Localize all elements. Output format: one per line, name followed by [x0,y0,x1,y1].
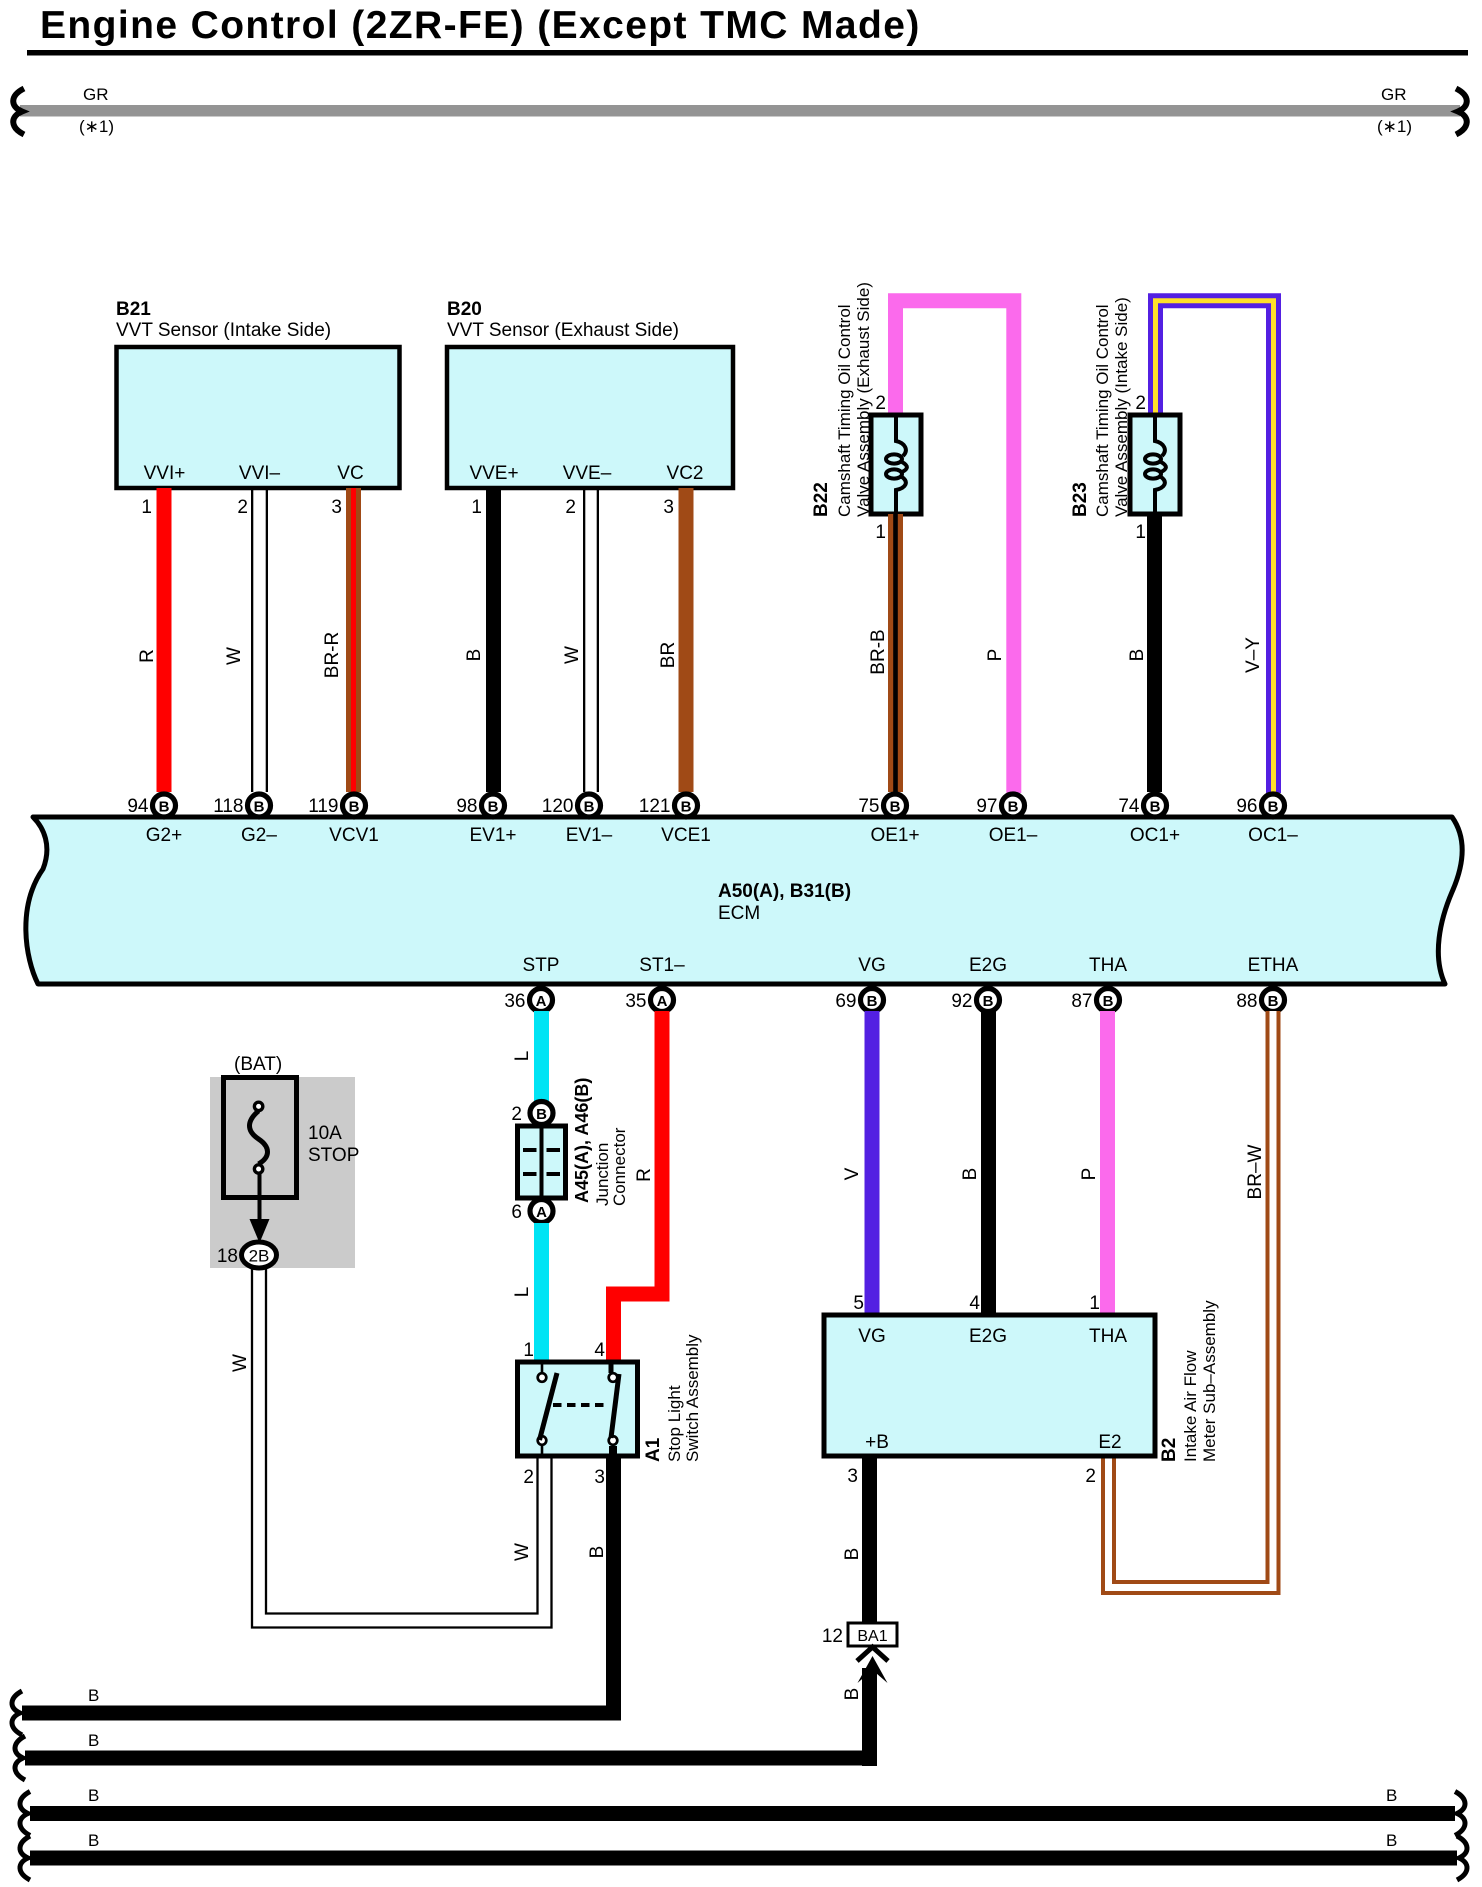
svg-text:75: 75 [858,796,879,817]
svg-text:4: 4 [594,1340,605,1361]
svg-text:VCE1: VCE1 [661,825,711,846]
svg-text:W: W [224,647,245,665]
svg-text:B22: B22 [811,482,832,517]
svg-text:35: 35 [625,991,646,1012]
svg-text:18: 18 [217,1246,238,1267]
svg-text:12: 12 [822,1626,843,1647]
svg-text:B: B [464,649,485,662]
svg-text:B: B [842,1548,863,1561]
svg-text:B: B [1127,649,1148,662]
svg-text:69: 69 [835,991,856,1012]
svg-text:96: 96 [1236,796,1257,817]
svg-text:A45(A), A46(B): A45(A), A46(B) [572,1078,592,1203]
svg-text:2: 2 [1085,1466,1096,1487]
svg-text:B21: B21 [116,299,151,320]
svg-text:B: B [1150,798,1161,815]
svg-text:2B: 2B [249,1247,270,1266]
svg-text:STOP: STOP [308,1145,359,1166]
svg-text:B: B [88,1831,99,1850]
svg-text:Intake Air Flow: Intake Air Flow [1181,1350,1200,1462]
svg-text:BA1: BA1 [857,1628,887,1645]
svg-text:36: 36 [504,991,525,1012]
svg-text:98: 98 [456,796,477,817]
svg-text:B: B [159,798,170,815]
svg-text:L: L [512,1051,533,1062]
svg-text:3: 3 [847,1466,858,1487]
svg-text:(BAT): (BAT) [234,1054,282,1075]
svg-text:B: B [349,798,360,815]
svg-text:OE1+: OE1+ [870,825,919,846]
svg-text:A: A [536,993,547,1010]
svg-text:W: W [230,1354,251,1372]
svg-text:VVE–: VVE– [563,463,612,484]
svg-text:94: 94 [127,796,149,817]
svg-text:B: B [867,993,878,1010]
svg-text:B: B [488,798,499,815]
svg-text:VC: VC [337,463,363,484]
svg-text:2: 2 [875,393,886,414]
svg-text:B: B [960,1168,981,1181]
svg-text:B2: B2 [1159,1438,1180,1462]
svg-text:Camshaft Timing Oil Control: Camshaft Timing Oil Control [835,304,854,517]
svg-text:VVT Sensor (Intake Side): VVT Sensor (Intake Side) [116,320,331,341]
svg-text:B: B [88,1686,99,1705]
svg-text:OC1+: OC1+ [1130,825,1180,846]
svg-text:E2G: E2G [969,1326,1007,1347]
svg-text:B: B [1386,1786,1397,1805]
svg-text:B: B [681,798,692,815]
svg-text:1: 1 [141,497,152,518]
svg-text:P: P [985,649,1006,662]
svg-text:VVI–: VVI– [239,463,281,484]
svg-text:B: B [890,798,901,815]
svg-text:B: B [983,993,994,1010]
svg-text:ECM: ECM [718,903,760,924]
svg-text:R: R [634,1168,655,1182]
svg-text:B: B [842,1688,863,1701]
svg-text:(∗1): (∗1) [79,117,114,136]
svg-text:2: 2 [1135,393,1146,414]
svg-text:VG: VG [858,955,885,976]
svg-text:A1: A1 [643,1437,664,1462]
svg-text:STP: STP [523,955,560,976]
svg-text:B: B [88,1731,99,1750]
svg-text:10A: 10A [308,1123,342,1144]
svg-text:Switch Assembly: Switch Assembly [683,1334,702,1462]
svg-text:6: 6 [511,1202,522,1223]
svg-text:1: 1 [471,497,482,518]
svg-text:VVE+: VVE+ [469,463,518,484]
svg-text:A: A [657,993,668,1010]
svg-text:1: 1 [1135,522,1146,543]
svg-text:VC2: VC2 [667,463,704,484]
svg-text:2: 2 [511,1104,522,1125]
svg-text:BR–W: BR–W [1245,1144,1266,1199]
svg-text:B: B [536,1106,547,1123]
svg-text:VVT Sensor (Exhaust Side): VVT Sensor (Exhaust Side) [447,320,679,341]
svg-text:VCV1: VCV1 [329,825,379,846]
svg-text:A50(A), B31(B): A50(A), B31(B) [718,881,851,902]
svg-text:G2+: G2+ [146,825,182,846]
svg-text:A: A [536,1204,547,1221]
svg-text:B: B [254,798,265,815]
svg-text:97: 97 [976,796,997,817]
svg-text:OC1–: OC1– [1248,825,1298,846]
svg-text:BR-R: BR-R [322,632,343,678]
svg-text:B: B [1008,798,1019,815]
svg-text:EV1+: EV1+ [469,825,516,846]
svg-text:92: 92 [951,991,972,1012]
svg-text:5: 5 [853,1293,864,1314]
svg-text:BR: BR [658,642,679,668]
svg-text:1: 1 [523,1340,534,1361]
svg-text:P: P [1079,1168,1100,1181]
svg-text:Connector: Connector [610,1127,629,1206]
svg-text:B23: B23 [1070,482,1091,517]
svg-text:E2G: E2G [969,955,1007,976]
svg-text:B20: B20 [447,299,482,320]
svg-text:ETHA: ETHA [1248,955,1299,976]
svg-text:B: B [1268,993,1279,1010]
svg-text:B: B [1268,798,1279,815]
svg-text:VVI+: VVI+ [144,463,186,484]
svg-text:4: 4 [969,1293,980,1314]
svg-text:3: 3 [663,497,674,518]
svg-text:3: 3 [594,1467,605,1488]
svg-text:ST1–: ST1– [639,955,685,976]
svg-text:BR-B: BR-B [868,629,889,674]
svg-text:119: 119 [308,796,338,817]
svg-text:2: 2 [565,497,576,518]
svg-text:88: 88 [1236,991,1257,1012]
svg-text:118: 118 [213,796,243,817]
svg-text:G2–: G2– [241,825,277,846]
svg-text:120: 120 [542,796,574,817]
svg-text:1: 1 [1089,1293,1100,1314]
svg-text:OE1–: OE1– [989,825,1038,846]
svg-text:1: 1 [875,522,886,543]
svg-text:VG: VG [858,1326,885,1347]
svg-text:Stop Light: Stop Light [665,1385,684,1462]
svg-text:121: 121 [639,796,671,817]
svg-text:W: W [562,646,583,664]
svg-text:R: R [137,649,158,663]
svg-text:W: W [512,1543,533,1561]
svg-text:2: 2 [523,1467,534,1488]
svg-text:87: 87 [1071,991,1092,1012]
svg-text:E2: E2 [1098,1432,1121,1453]
svg-text:B: B [88,1786,99,1805]
svg-text:(∗1): (∗1) [1377,117,1412,136]
svg-text:B: B [587,1546,608,1559]
svg-text:THA: THA [1089,955,1127,976]
svg-text:Engine Control (2ZR-FE) (Excep: Engine Control (2ZR-FE) (Except TMC Made… [40,4,921,47]
svg-text:V–Y: V–Y [1243,637,1264,673]
svg-text:GR: GR [1381,85,1407,104]
svg-text:2: 2 [237,497,248,518]
svg-text:B: B [1386,1831,1397,1850]
svg-text:Meter Sub–Assembly: Meter Sub–Assembly [1200,1300,1219,1462]
svg-text:GR: GR [83,85,109,104]
svg-text:74: 74 [1118,796,1140,817]
svg-text:THA: THA [1089,1326,1127,1347]
svg-text:B: B [1103,993,1114,1010]
svg-text:+B: +B [865,1432,889,1453]
svg-text:Camshaft Timing Oil Control: Camshaft Timing Oil Control [1093,304,1112,517]
svg-text:EV1–: EV1– [566,825,613,846]
svg-text:B: B [584,798,595,815]
svg-text:L: L [512,1287,533,1298]
svg-text:3: 3 [331,497,342,518]
svg-text:V: V [842,1167,863,1180]
